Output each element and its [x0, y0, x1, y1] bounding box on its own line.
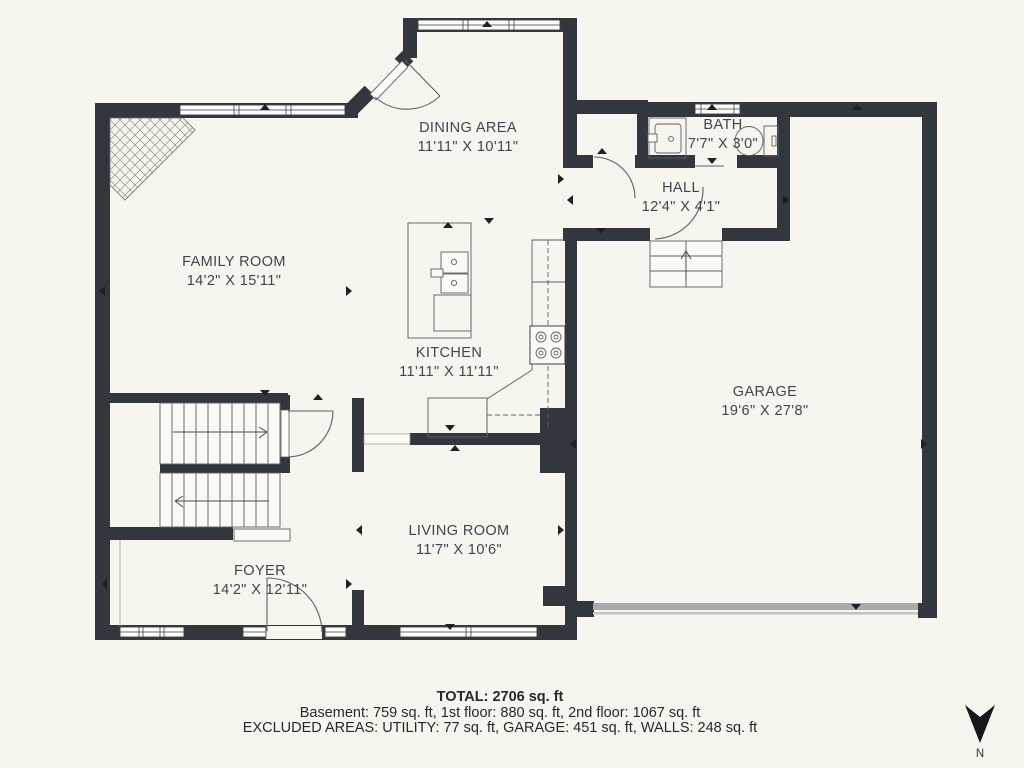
floorplan-page: DINING AREA 11'11" X 10'11" BATH 7'7" X …	[0, 0, 1024, 768]
room-name: LIVING ROOM	[408, 523, 509, 539]
room-dims: 11'11" X 11'11"	[399, 364, 499, 380]
room-dims: 11'7" X 10'6"	[416, 542, 502, 558]
front-door-opening	[266, 626, 322, 639]
room-name: HALL	[662, 180, 700, 196]
summary-total: TOTAL: 2706 sq. ft	[437, 689, 564, 705]
room-dims: 7'7" X 3'0"	[688, 136, 758, 152]
summary-floors: Basement: 759 sq. ft, 1st floor: 880 sq.…	[300, 705, 701, 721]
room-name: DINING AREA	[419, 120, 517, 136]
stairs-basement	[650, 241, 722, 287]
room-name: FAMILY ROOM	[182, 254, 286, 270]
room-dims: 19'6" X 27'8"	[721, 403, 808, 419]
room-name: BATH	[703, 117, 742, 133]
garage-door	[593, 603, 918, 615]
window-foyer-left	[120, 627, 184, 637]
stove-icon	[530, 326, 565, 364]
floorplan-svg: DINING AREA 11'11" X 10'11" BATH 7'7" X …	[0, 0, 1024, 768]
room-dims: 14'2" X 15'11"	[187, 273, 282, 289]
window-foyer-sidelite-right	[325, 627, 346, 637]
cased-opening	[364, 434, 410, 444]
room-name: GARAGE	[733, 384, 797, 400]
room-dims: 14'2" X 12'11"	[213, 582, 308, 598]
stair-landing	[234, 529, 290, 541]
room-dims: 11'11" X 10'11"	[418, 139, 519, 155]
window-foyer-sidelite-left	[243, 627, 266, 637]
compass-label: N	[976, 748, 984, 760]
room-name: FOYER	[234, 563, 286, 579]
window-bath	[695, 104, 740, 114]
room-dims: 12'4" X 4'1"	[642, 199, 721, 215]
summary-excluded: EXCLUDED AREAS: UTILITY: 77 sq. ft, GARA…	[243, 720, 757, 736]
room-name: KITCHEN	[416, 345, 482, 361]
window-living-bottom	[400, 627, 537, 637]
